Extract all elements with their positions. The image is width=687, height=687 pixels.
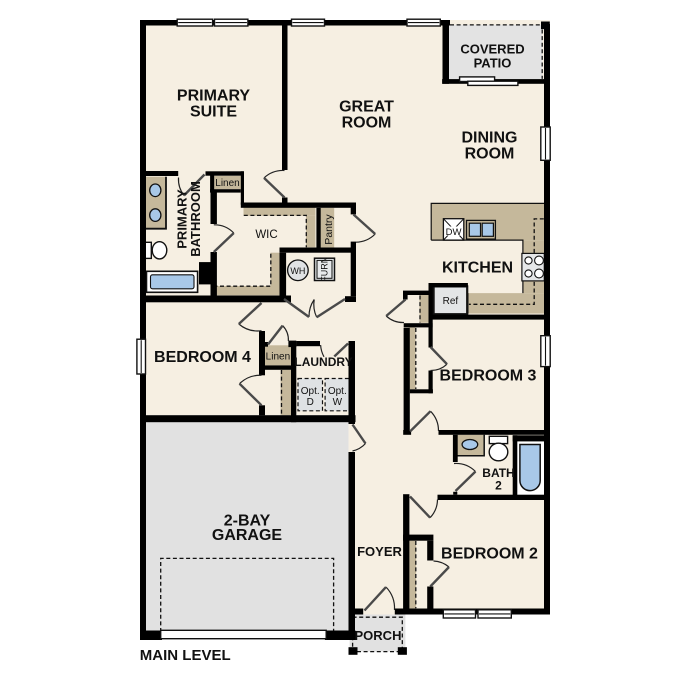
svg-text:BATHROOM: BATHROOM <box>188 181 203 257</box>
svg-text:SUITE: SUITE <box>190 104 237 121</box>
svg-text:ROOM: ROOM <box>342 115 392 132</box>
svg-text:PATIO: PATIO <box>474 56 512 71</box>
svg-text:MAIN LEVEL: MAIN LEVEL <box>140 647 231 664</box>
svg-text:Opt.: Opt. <box>301 386 320 397</box>
svg-text:PRIMARY: PRIMARY <box>177 88 251 105</box>
svg-text:Linen: Linen <box>266 352 290 363</box>
svg-text:PORCH: PORCH <box>355 628 402 643</box>
svg-text:DINING: DINING <box>462 130 518 147</box>
svg-text:Opt.: Opt. <box>328 386 347 397</box>
svg-text:DW: DW <box>446 227 462 238</box>
svg-text:LAUNDRY: LAUNDRY <box>294 355 352 369</box>
svg-text:WIC: WIC <box>255 229 277 241</box>
svg-text:COVERED: COVERED <box>460 42 524 57</box>
svg-text:W: W <box>333 397 343 408</box>
svg-text:Ref: Ref <box>443 296 459 307</box>
svg-text:GARAGE: GARAGE <box>212 527 283 544</box>
svg-text:BEDROOM 3: BEDROOM 3 <box>440 368 537 385</box>
svg-text:BEDROOM 4: BEDROOM 4 <box>154 349 251 366</box>
svg-text:FOYER: FOYER <box>357 544 402 559</box>
svg-text:PRIMARY: PRIMARY <box>174 189 189 249</box>
svg-text:ROOM: ROOM <box>465 146 515 163</box>
svg-text:Linen: Linen <box>215 178 239 189</box>
svg-text:KITCHEN: KITCHEN <box>442 260 513 277</box>
svg-text:BEDROOM 2: BEDROOM 2 <box>441 546 538 563</box>
svg-text:2: 2 <box>495 479 502 493</box>
svg-text:WH: WH <box>290 266 305 276</box>
svg-text:Pantry: Pantry <box>323 214 335 245</box>
svg-text:D: D <box>307 397 314 408</box>
svg-text:FURN: FURN <box>320 257 330 282</box>
svg-text:GREAT: GREAT <box>339 99 394 116</box>
